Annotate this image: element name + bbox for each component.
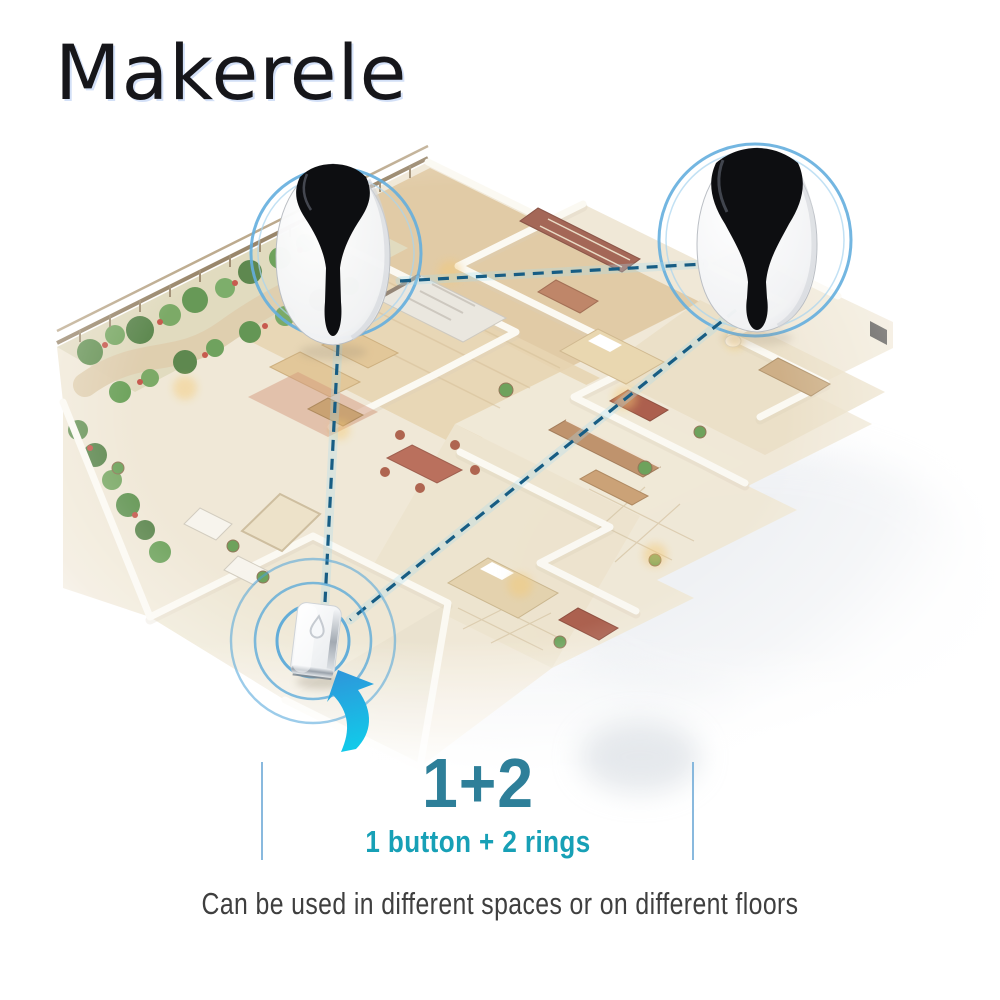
headline-subtitle: 1 button + 2 rings (297, 826, 660, 857)
headline-title: 1+2 (279, 748, 676, 818)
caption-text: Can be used in different spaces or on di… (100, 886, 900, 922)
brand-logo: Makerele (55, 28, 407, 117)
right-divider-line (692, 762, 694, 860)
product-image: Makerele 1+2 1 button + 2 rings Can be u… (0, 0, 1000, 1000)
left-divider-line (261, 762, 263, 860)
